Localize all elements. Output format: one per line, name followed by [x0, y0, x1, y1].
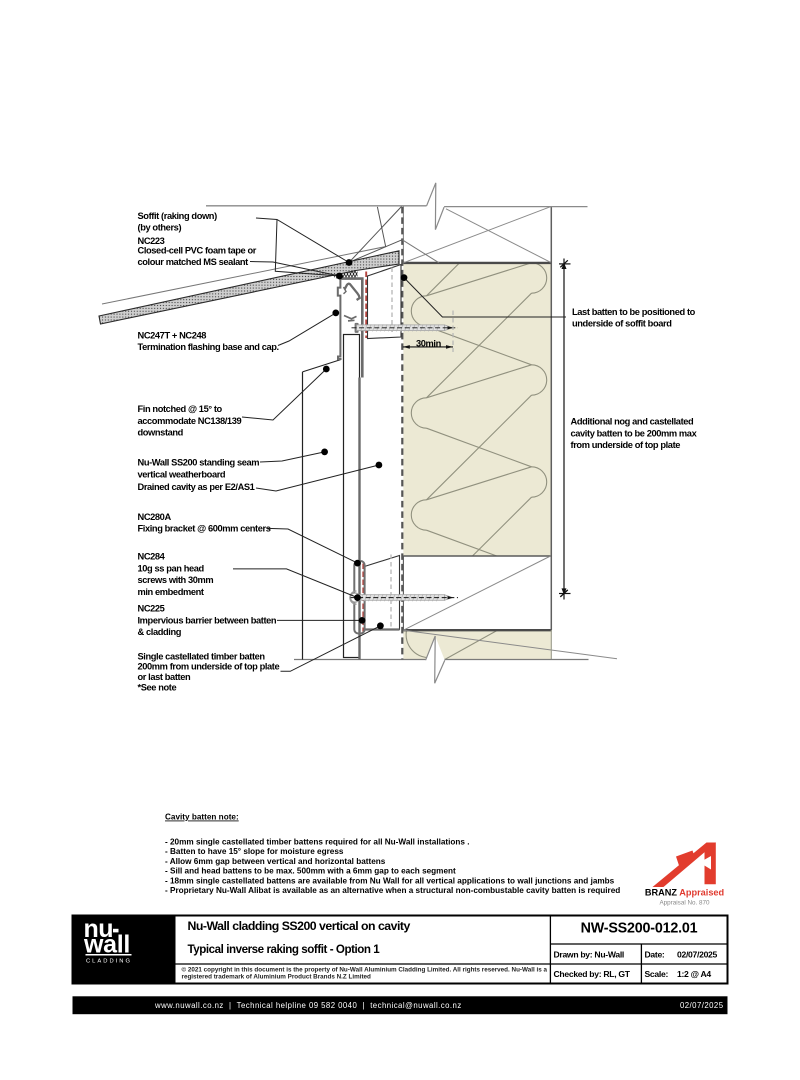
svg-text:200mm from underside of top pl: 200mm from underside of top plate: [138, 662, 280, 672]
svg-text:colour matched MS sealant: colour matched MS sealant: [138, 257, 249, 267]
svg-text:accommodate NC138/139: accommodate NC138/139: [138, 416, 242, 426]
svg-text:screws with 30mm: screws with 30mm: [138, 575, 214, 585]
svg-text:Fin notched @ 15° to: Fin notched @ 15° to: [138, 404, 223, 414]
svg-text:- Allow 6mm gap between vertic: - Allow 6mm gap between vertical and hor…: [165, 857, 386, 866]
svg-text:Appraisal No. 870: Appraisal No. 870: [659, 899, 710, 906]
svg-text:Drawn by: Nu-Wall: Drawn by: Nu-Wall: [554, 949, 625, 959]
svg-text:NC223: NC223: [138, 236, 165, 246]
svg-text:min embedment: min embedment: [138, 587, 204, 597]
svg-text:registered trademark of Alumin: registered trademark of Aluminium Produc…: [182, 973, 372, 980]
svg-text:Scale:: Scale:: [645, 969, 669, 979]
svg-text:downstand: downstand: [138, 428, 184, 438]
svg-text:Soffit (raking down): Soffit (raking down): [138, 211, 218, 221]
svg-text:*See note: *See note: [138, 683, 177, 693]
svg-text:- 18mm single castellated batt: - 18mm single castellated battens are av…: [165, 876, 615, 885]
svg-text:1:2 @ A4: 1:2 @ A4: [677, 969, 711, 979]
svg-text:or last batten: or last batten: [138, 672, 191, 682]
svg-text:& cladding: & cladding: [138, 627, 182, 637]
svg-text:BRANZ Appraised: BRANZ Appraised: [645, 888, 724, 898]
svg-text:NC280A: NC280A: [138, 512, 172, 522]
svg-text:www.nuwall.co.nz | Technical: www.nuwall.co.nz | Technical helpline 09…: [154, 1001, 462, 1010]
svg-text:Last batten to be positioned t: Last batten to be positioned to: [572, 307, 696, 317]
svg-text:(by others): (by others): [138, 223, 182, 233]
svg-text:vertical weatherboard: vertical weatherboard: [138, 469, 226, 479]
svg-text:Typical inverse raking soffit: Typical inverse raking soffit - Option 1: [188, 943, 381, 956]
svg-text:NW-SS200-012.01: NW-SS200-012.01: [581, 921, 698, 937]
svg-text:Additional nog and castellated: Additional nog and castellated: [571, 417, 695, 427]
svg-text:Cavity batten note:: Cavity batten note:: [165, 813, 239, 822]
svg-text:NC225: NC225: [138, 603, 165, 613]
svg-text:- Batten to have 15° slope for: - Batten to have 15° slope for moisture …: [165, 847, 344, 856]
svg-text:10g ss pan head: 10g ss pan head: [138, 563, 205, 573]
svg-text:02/07/2025: 02/07/2025: [677, 949, 718, 959]
svg-text:cavity batten to be 200mm max: cavity batten to be 200mm max: [571, 428, 698, 438]
svg-text:Checked by: RL, GT: Checked by: RL, GT: [554, 969, 631, 979]
svg-text:30min: 30min: [416, 338, 442, 348]
svg-text:Nu-Wall SS200 standing seam: Nu-Wall SS200 standing seam: [138, 457, 260, 467]
svg-text:Closed-cell PVC foam tape or: Closed-cell PVC foam tape or: [138, 245, 257, 255]
svg-text:- Sill and head battens to be: - Sill and head battens to be max. 500mm…: [165, 867, 456, 876]
svg-text:- Proprietary Nu-Wall Alibat i: - Proprietary Nu-Wall Alibat is availabl…: [165, 886, 620, 895]
svg-text:underside of soffit board: underside of soffit board: [572, 319, 672, 329]
svg-text:Nu-Wall cladding SS200 vertica: Nu-Wall cladding SS200 vertical on cavit…: [188, 919, 411, 933]
svg-text:02/07/2025: 02/07/2025: [680, 1001, 724, 1010]
svg-text:Single castellated timber batt: Single castellated timber batten: [138, 651, 266, 661]
svg-text:Impervious barrier between bat: Impervious barrier between batten: [138, 615, 277, 625]
svg-text:from underside of top plate: from underside of top plate: [571, 440, 681, 450]
svg-text:NC247T + NC248: NC247T + NC248: [138, 330, 207, 340]
svg-text:- 20mm single castellated timb: - 20mm single castellated timber battens…: [165, 837, 470, 846]
svg-text:NC284: NC284: [138, 551, 166, 561]
svg-text:CLADDING: CLADDING: [86, 959, 132, 965]
svg-text:Fixing bracket @ 600mm centers: Fixing bracket @ 600mm centers: [138, 524, 271, 534]
svg-text:Termination flashing base and: Termination flashing base and cap.: [138, 342, 279, 352]
svg-text:Drained cavity as per E2/AS1: Drained cavity as per E2/AS1: [138, 482, 255, 492]
svg-text:Date:: Date:: [645, 949, 665, 959]
